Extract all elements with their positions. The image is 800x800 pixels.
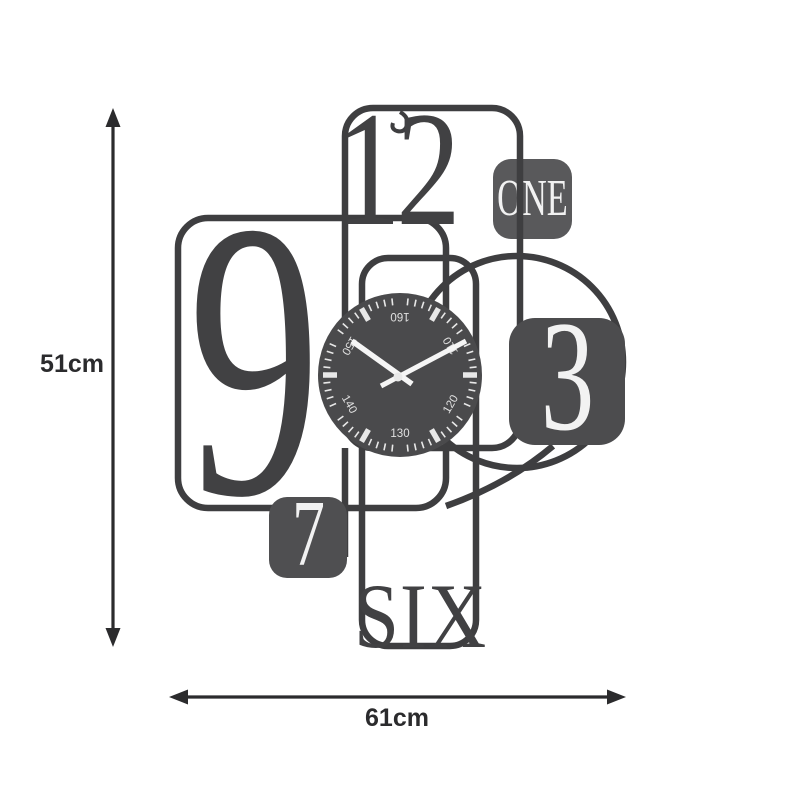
arrowhead-right-icon (607, 690, 626, 705)
hands-hub (394, 373, 403, 382)
product-dimension-image: ONE 12 9 SIX 3 7 (0, 0, 800, 800)
width-dimension-arrow (169, 690, 626, 705)
dial-number: 130 (390, 428, 409, 440)
seven-plate: 7 (269, 497, 347, 578)
dial-number: 160 (390, 310, 409, 322)
seven-plate-label: 7 (292, 487, 325, 589)
one-plate-label: ONE (497, 173, 568, 225)
height-dimension-label: 51cm (40, 350, 104, 379)
width-dimension-label: 61cm (347, 704, 447, 733)
height-dimension-arrow (106, 108, 121, 647)
numeral-six: SIX (354, 570, 505, 662)
minute-hand (381, 341, 466, 386)
arrowhead-left-icon (169, 690, 188, 705)
wire-arc (446, 446, 553, 506)
three-plate: 3 (509, 318, 625, 445)
one-plate: ONE (493, 159, 572, 239)
dial-number: 110 (441, 335, 461, 357)
three-plate-label: 3 (540, 298, 594, 466)
arrowhead-down-icon (106, 628, 121, 647)
arrowhead-up-icon (106, 108, 121, 127)
dial-number: 120 (441, 393, 461, 416)
